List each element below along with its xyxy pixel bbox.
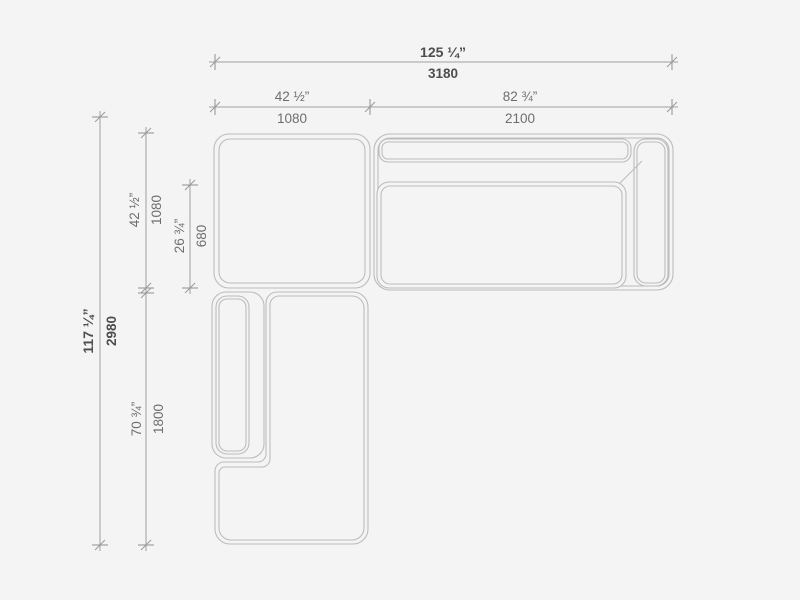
sofa-plan bbox=[212, 134, 673, 544]
dim-label-chaise-length-inches: 70 ¾” bbox=[129, 402, 144, 437]
dim-label-corner-depth-mm: 1080 bbox=[149, 195, 164, 225]
dim-label-total-depth-inches: 117 ¼” bbox=[80, 308, 96, 353]
dim-label-corner-depth-inches: 42 ½” bbox=[127, 193, 142, 228]
dim-label-left-width-mm: 1080 bbox=[277, 111, 307, 126]
dim-seat-depth: 26 ¾” 680 bbox=[172, 179, 209, 294]
dim-label-seat-depth-inches: 26 ¾” bbox=[172, 219, 187, 254]
right-sofa-armrest bbox=[634, 139, 668, 286]
dim-label-left-width-inches: 42 ½” bbox=[275, 89, 310, 104]
sofa-plan-svg: 125 ¼” 3180 42 ½” 1080 82 ¾” 2100 117 ¼”… bbox=[0, 0, 800, 600]
dim-label-total-width-inches: 125 ¼” bbox=[420, 44, 466, 60]
corner-module-outline bbox=[214, 134, 370, 288]
dim-total-depth: 117 ¼” 2980 bbox=[80, 111, 119, 551]
dim-label-seat-depth-mm: 680 bbox=[194, 225, 209, 248]
dim-label-total-width-mm: 3180 bbox=[428, 66, 458, 81]
dim-chaise-length: 70 ¾” 1800 bbox=[129, 288, 166, 551]
dim-label-total-depth-mm: 2980 bbox=[104, 316, 119, 346]
dim-label-right-width-mm: 2100 bbox=[505, 111, 535, 126]
corner-module bbox=[214, 134, 370, 288]
dimension-drawing-canvas: 125 ¼” 3180 42 ½” 1080 82 ¾” 2100 117 ¼”… bbox=[0, 0, 800, 600]
dim-corner-depth: 42 ½” 1080 bbox=[127, 127, 164, 293]
dim-label-chaise-length-mm: 1800 bbox=[151, 404, 166, 434]
dim-label-right-width-inches: 82 ¾” bbox=[503, 89, 538, 104]
chaise-backrest-cushion bbox=[216, 296, 249, 454]
right-sofa-seat-cushion bbox=[377, 182, 626, 288]
chaise-module bbox=[212, 292, 368, 544]
dim-total-width: 125 ¼” 3180 bbox=[209, 44, 678, 81]
right-sofa-module bbox=[374, 134, 673, 290]
dim-section-widths: 42 ½” 1080 82 ¾” 2100 bbox=[209, 89, 678, 126]
